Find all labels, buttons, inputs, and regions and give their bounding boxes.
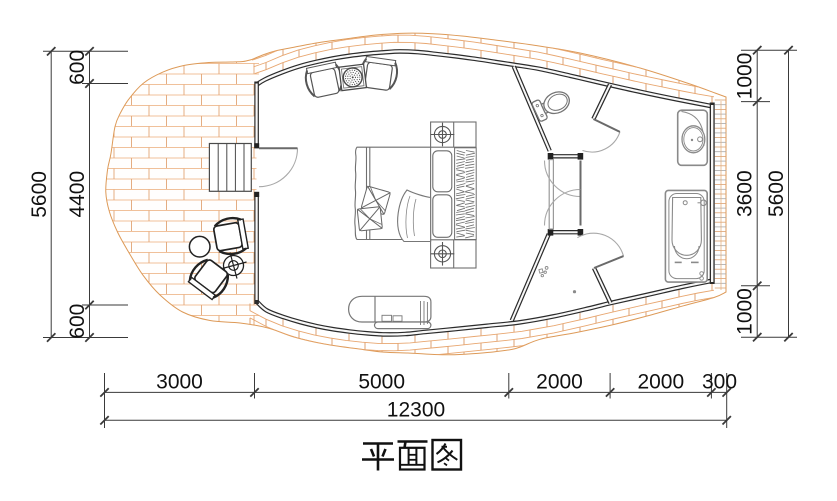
svg-text:1000: 1000: [734, 53, 757, 100]
svg-text:5600: 5600: [28, 171, 51, 218]
svg-text:4400: 4400: [66, 171, 89, 218]
svg-text:3000: 3000: [156, 370, 203, 393]
svg-text:300: 300: [702, 370, 737, 393]
svg-text:12300: 12300: [387, 398, 445, 421]
svg-text:5000: 5000: [358, 370, 405, 393]
svg-text:3600: 3600: [734, 170, 757, 217]
svg-text:2000: 2000: [637, 370, 684, 393]
svg-text:2000: 2000: [536, 370, 583, 393]
svg-text:5600: 5600: [765, 170, 788, 217]
svg-text:1000: 1000: [734, 288, 757, 335]
svg-text:600: 600: [66, 304, 89, 339]
svg-text:600: 600: [66, 50, 89, 85]
